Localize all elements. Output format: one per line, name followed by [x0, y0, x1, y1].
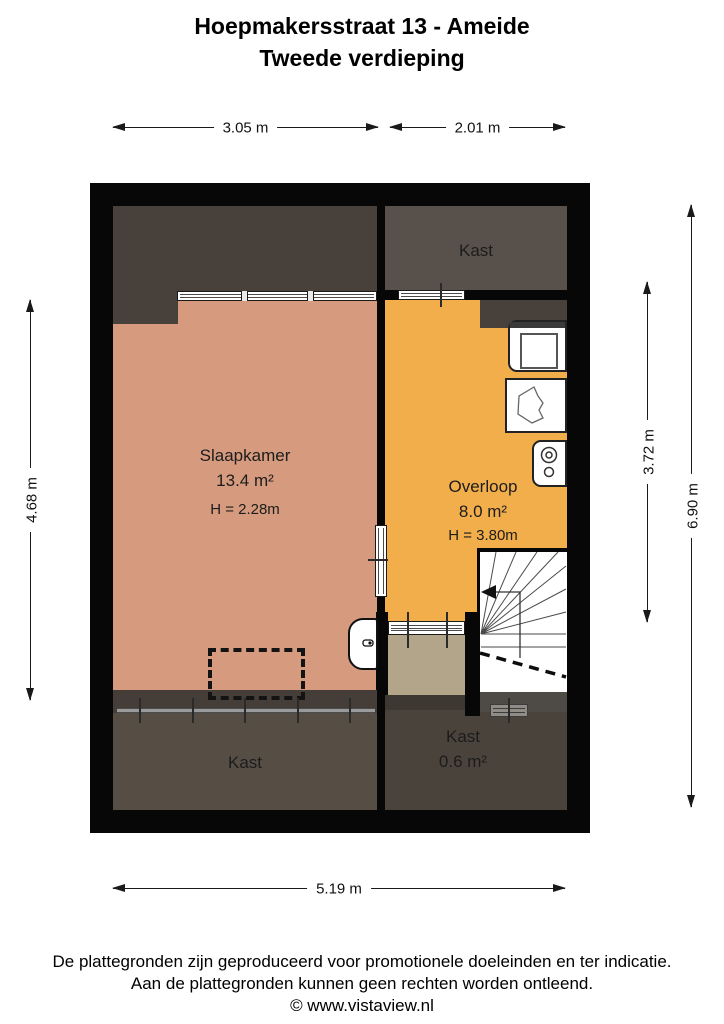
arrowhead-right-icon [366, 123, 379, 131]
dimension-label: 3.05 m [214, 119, 278, 138]
window-mullion [241, 291, 248, 301]
room-label-slaapkamer: Slaapkamer 13.4 m² H = 2.28m [145, 443, 345, 521]
room-label-overloop: Overloop 8.0 m² H = 3.80m [403, 474, 563, 547]
closet-door-tick [297, 698, 299, 723]
opening-tick [368, 559, 388, 561]
title-address: Hoepmakersstraat 13 - Ameide [0, 10, 724, 42]
window-slaapkamer [177, 291, 377, 301]
wall-kast-small-right [465, 612, 480, 696]
arrowhead-left-icon [112, 884, 125, 892]
dimension-label: 5.19 m [307, 880, 371, 899]
dimension-label: 3.72 m [639, 420, 658, 484]
room-name: Overloop [403, 474, 563, 499]
arrowhead-right-icon [553, 123, 566, 131]
opening-tick [446, 612, 448, 648]
dimension-label: 2.01 m [446, 119, 510, 138]
dimension-bottom: 5.19 m [113, 888, 565, 889]
roof-slope-left-step [113, 293, 178, 324]
window-interior-vertical [375, 525, 387, 597]
dimension-top-right: 2.01 m [390, 127, 565, 128]
room-area: 8.0 m² [403, 499, 563, 524]
opening-tick [508, 698, 510, 723]
wall-divider-top [377, 206, 385, 300]
roof-slope-top-left [113, 206, 377, 293]
window-overloop [398, 290, 465, 300]
closet-door-track [117, 708, 375, 713]
footer-line2: Aan de plattegronden kunnen geen rechten… [0, 973, 724, 995]
closet-door-tick [192, 698, 194, 723]
washing-machine-panel [510, 322, 565, 328]
sink-basin-outline [518, 387, 543, 423]
room-name: Kast [408, 724, 518, 749]
room-name: Slaapkamer [145, 443, 345, 468]
dimension-label: 6.90 m [683, 474, 702, 538]
closet-door-tick [349, 698, 351, 723]
arrowhead-down-icon [26, 688, 34, 701]
dimension-top-left: 3.05 m [113, 127, 378, 128]
wall-divider-middle [377, 300, 385, 525]
stairs [480, 552, 567, 692]
arrowhead-right-icon [553, 884, 566, 892]
arrowhead-down-icon [687, 795, 695, 808]
footer-disclaimer: De plattegronden zijn geproduceerd voor … [0, 951, 724, 1017]
washing-machine-door [520, 333, 558, 369]
toilet [348, 618, 378, 670]
window-mullion [307, 291, 314, 301]
footer-line1: De plattegronden zijn geproduceerd voor … [0, 951, 724, 973]
opening-tick [440, 283, 442, 307]
arrowhead-left-icon [389, 123, 402, 131]
room-name: Kast [145, 750, 345, 775]
room-name: Kast [385, 238, 567, 263]
wall-understairs [465, 690, 480, 716]
arrowhead-down-icon [643, 610, 651, 623]
sink [505, 378, 567, 433]
room-label-kast-top: Kast [385, 238, 567, 263]
opening-tick [407, 612, 409, 648]
washing-machine [508, 320, 567, 372]
page-title: Hoepmakersstraat 13 - Ameide Tweede verd… [0, 10, 724, 74]
room-kast-small-floor [388, 635, 465, 695]
dimension-label: 4.68 m [22, 468, 41, 532]
floorplan: Kast [90, 183, 590, 833]
closet-door-tick [244, 698, 246, 723]
footer-copyright: © www.vistaview.nl [0, 995, 724, 1017]
dashed-dormer-outline [208, 648, 305, 700]
arrowhead-up-icon [687, 204, 695, 217]
room-label-kast-bottom-left: Kast [145, 750, 345, 775]
room-label-kast-bottom-middle: Kast 0.6 m² [408, 724, 518, 774]
room-ceiling-height: H = 3.80m [403, 524, 563, 547]
window-kast-small [388, 621, 465, 635]
room-area: 0.6 m² [408, 749, 518, 774]
arrowhead-left-icon [112, 123, 125, 131]
room-area: 13.4 m² [145, 468, 345, 493]
dimension-right-inner: 3.72 m [647, 282, 648, 622]
floorplan-interior: Kast [113, 206, 567, 810]
dimension-right-outer: 6.90 m [691, 205, 692, 807]
title-floor: Tweede verdieping [0, 42, 724, 74]
dimension-left: 4.68 m [30, 300, 31, 700]
closet-door-tick [139, 698, 141, 723]
arrowhead-up-icon [643, 281, 651, 294]
arrowhead-up-icon [26, 299, 34, 312]
floorplan-page: Hoepmakersstraat 13 - Ameide Tweede verd… [0, 0, 724, 1024]
room-ceiling-height: H = 2.28m [145, 498, 345, 521]
